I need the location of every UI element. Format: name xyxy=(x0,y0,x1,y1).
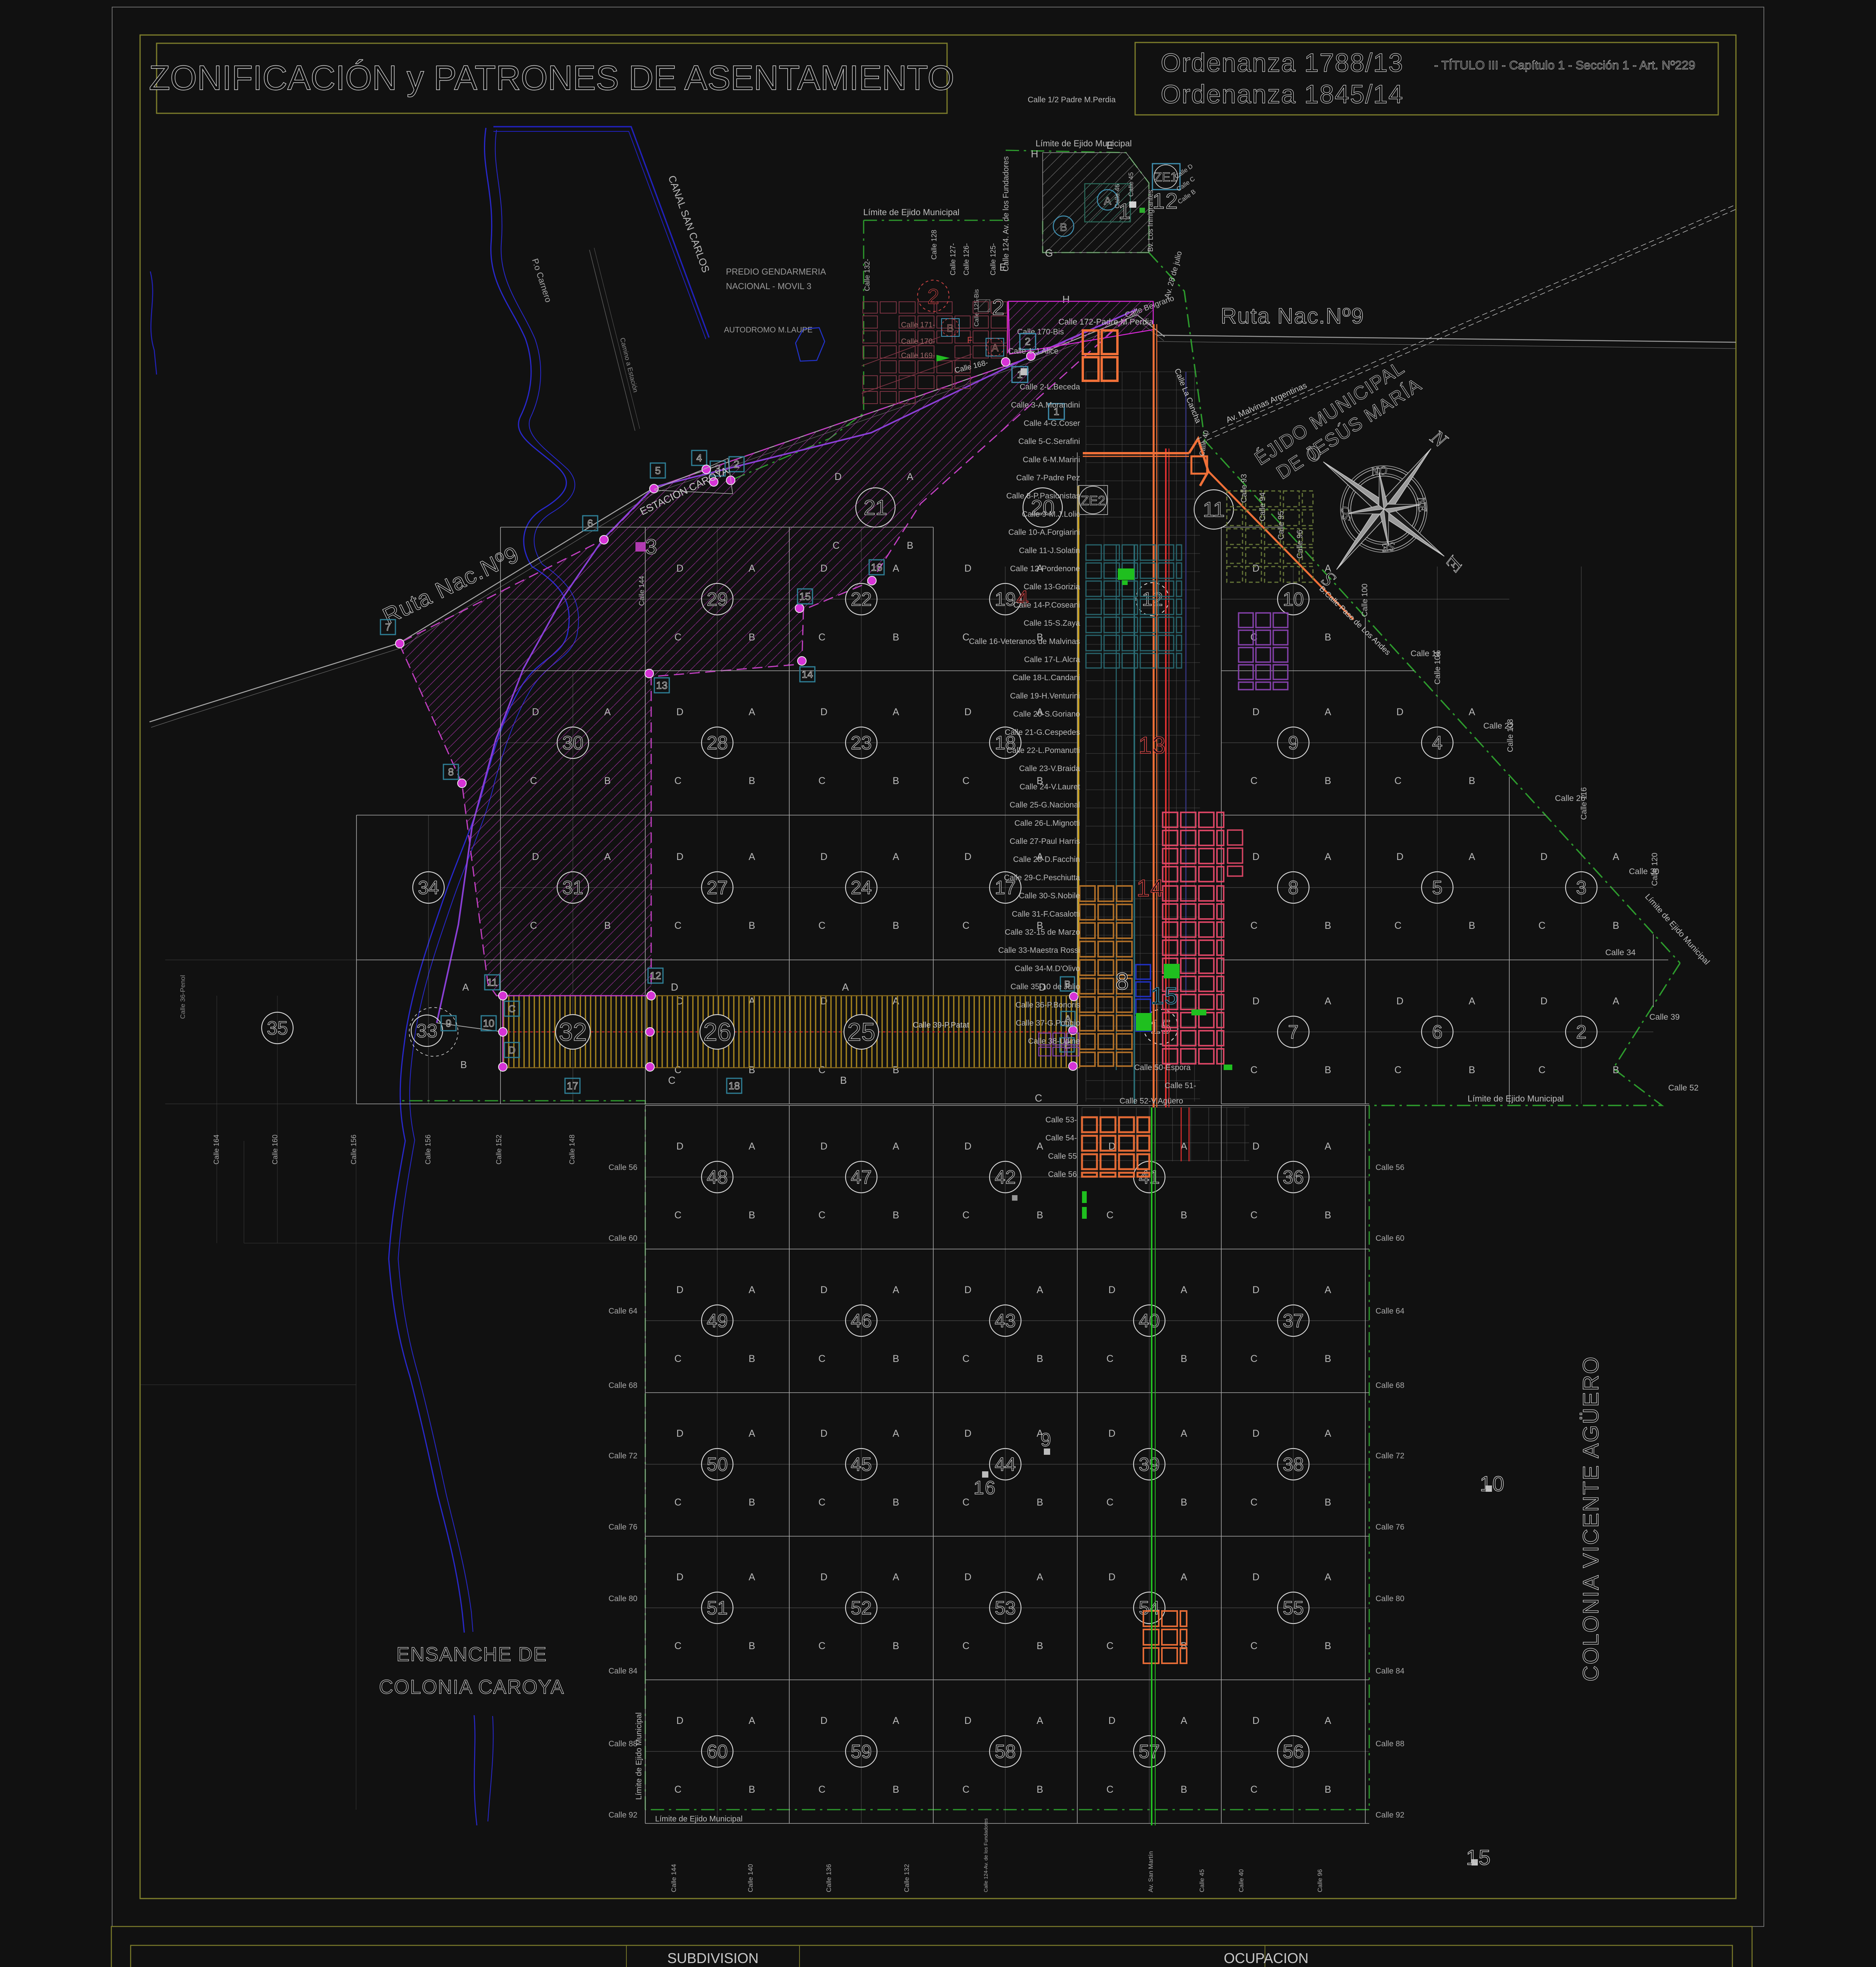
svg-text:C: C xyxy=(674,1784,681,1795)
svg-text:Calle 84: Calle 84 xyxy=(1376,1667,1404,1675)
svg-text:Calle 20-S.Goriano: Calle 20-S.Goriano xyxy=(1013,710,1080,719)
svg-text:Calle 127-: Calle 127- xyxy=(949,243,957,275)
svg-text:C: C xyxy=(1106,1640,1113,1651)
svg-text:Calle 7-Padre Pez: Calle 7-Padre Pez xyxy=(1016,474,1080,482)
svg-text:D: D xyxy=(676,1284,683,1295)
svg-text:A: A xyxy=(1325,1572,1331,1583)
svg-text:B: B xyxy=(893,1353,899,1364)
svg-text:AUTODROMO M.LAUPE: AUTODROMO M.LAUPE xyxy=(724,326,812,334)
svg-text:D: D xyxy=(964,563,971,574)
svg-text:60: 60 xyxy=(707,1741,728,1762)
svg-text:6: 6 xyxy=(587,517,593,529)
svg-text:D: D xyxy=(1252,851,1259,862)
svg-text:Calle 21-G.Cespedes: Calle 21-G.Cespedes xyxy=(1005,728,1080,737)
svg-text:5: 5 xyxy=(1432,877,1443,898)
svg-text:Calle 54-: Calle 54- xyxy=(1045,1134,1077,1142)
svg-text:D: D xyxy=(1108,1715,1115,1726)
svg-text:D: D xyxy=(1540,851,1547,862)
svg-text:Calle 31-F.Casalotti: Calle 31-F.Casalotti xyxy=(1012,910,1080,919)
svg-text:D: D xyxy=(835,471,842,482)
svg-text:ZONIFICACIÓN y PATRONES DE ASE: ZONIFICACIÓN y PATRONES DE ASENTAMIENTO xyxy=(149,58,954,97)
svg-text:27: 27 xyxy=(707,877,728,898)
svg-text:Calle 50-Espora: Calle 50-Espora xyxy=(1134,1063,1191,1072)
svg-text:47: 47 xyxy=(851,1167,872,1188)
svg-text:Calle 88: Calle 88 xyxy=(1376,1740,1404,1748)
svg-text:D: D xyxy=(1252,1428,1259,1439)
svg-text:4: 4 xyxy=(1432,733,1443,753)
svg-text:4: 4 xyxy=(696,452,702,464)
svg-text:B: B xyxy=(604,920,611,931)
svg-text:Calle 52-V.Agüero: Calle 52-V.Agüero xyxy=(1119,1097,1183,1105)
svg-text:D: D xyxy=(532,851,539,862)
svg-text:B: B xyxy=(893,920,899,931)
svg-text:C: C xyxy=(1250,1353,1257,1364)
svg-text:13: 13 xyxy=(1139,732,1167,758)
svg-text:B: B xyxy=(749,1210,755,1221)
svg-text:Calle 95: Calle 95 xyxy=(1277,511,1285,540)
svg-text:Calle 28-D.Facchin: Calle 28-D.Facchin xyxy=(1013,855,1080,864)
svg-text:57: 57 xyxy=(1139,1741,1160,1762)
svg-text:C: C xyxy=(962,1210,969,1221)
svg-text:Calle 33-Maestra Rossi: Calle 33-Maestra Rossi xyxy=(998,946,1080,955)
svg-text:A: A xyxy=(1325,1428,1331,1439)
svg-text:B: B xyxy=(907,540,914,551)
svg-text:55: 55 xyxy=(1283,1598,1304,1618)
svg-text:A: A xyxy=(893,1428,899,1439)
svg-text:- TÍTULO III - Capítulo 1 - Se: - TÍTULO III - Capítulo 1 - Sección 1 - … xyxy=(1434,58,1695,72)
svg-text:D: D xyxy=(676,1141,683,1152)
svg-text:Ordenanza 1845/14: Ordenanza 1845/14 xyxy=(1161,79,1403,109)
svg-text:C: C xyxy=(818,632,825,643)
svg-text:A: A xyxy=(893,1141,899,1152)
svg-text:50: 50 xyxy=(707,1454,728,1475)
svg-text:D: D xyxy=(1108,1572,1115,1583)
svg-text:Calle 32-15 de Marzo: Calle 32-15 de Marzo xyxy=(1005,928,1080,937)
svg-text:53: 53 xyxy=(995,1598,1016,1618)
svg-text:B: B xyxy=(1037,1640,1043,1651)
svg-text:2: 2 xyxy=(1576,1022,1587,1043)
svg-text:6: 6 xyxy=(1432,1022,1443,1043)
svg-text:C: C xyxy=(508,1004,515,1015)
svg-text:Calle 96: Calle 96 xyxy=(1296,530,1304,559)
svg-text:3: 3 xyxy=(1576,877,1587,898)
svg-text:2: 2 xyxy=(992,295,1005,319)
svg-text:Calle 9-M.J.Lolic: Calle 9-M.J.Lolic xyxy=(1022,510,1080,519)
svg-text:D: D xyxy=(1252,996,1259,1007)
svg-text:Calle 76: Calle 76 xyxy=(1376,1523,1404,1532)
svg-text:29: 29 xyxy=(707,589,728,610)
svg-text:Calle 56: Calle 56 xyxy=(609,1163,637,1172)
svg-text:C: C xyxy=(674,775,681,786)
svg-text:Calle 80: Calle 80 xyxy=(1376,1594,1404,1603)
svg-text:Calle 26-L.Mignotti: Calle 26-L.Mignotti xyxy=(1014,819,1080,828)
svg-text:Calle 128: Calle 128 xyxy=(930,230,938,260)
svg-text:Calle 80: Calle 80 xyxy=(609,1594,637,1603)
svg-text:Calle 34-M.D'Olivo: Calle 34-M.D'Olivo xyxy=(1015,964,1080,973)
svg-text:C: C xyxy=(1538,920,1545,931)
svg-text:B: B xyxy=(1060,221,1067,233)
svg-text:B: B xyxy=(1181,1784,1187,1795)
svg-text:Calle 148: Calle 148 xyxy=(568,1135,576,1164)
svg-text:Límite de Ejido Municipal: Límite de Ejido Municipal xyxy=(863,207,960,217)
svg-text:D: D xyxy=(1252,563,1259,574)
svg-text:D: D xyxy=(964,1284,971,1295)
svg-text:OCUPACION: OCUPACION xyxy=(1224,1950,1308,1966)
svg-text:A: A xyxy=(749,1572,755,1583)
svg-text:D: D xyxy=(820,1141,827,1152)
svg-text:34: 34 xyxy=(418,877,439,898)
svg-text:8: 8 xyxy=(1288,877,1299,898)
svg-text:Límite de Ejido Municipal: Límite de Ejido Municipal xyxy=(655,1815,742,1823)
svg-text:Calle 76: Calle 76 xyxy=(609,1523,637,1532)
svg-text:Límite de Ejido Municipal: Límite de Ejido Municipal xyxy=(635,1712,643,1800)
svg-text:B: B xyxy=(1037,1784,1043,1795)
svg-text:C: C xyxy=(674,920,681,931)
svg-text:A: A xyxy=(1181,1428,1187,1439)
svg-text:10: 10 xyxy=(1480,1472,1505,1496)
svg-text:37: 37 xyxy=(1283,1310,1304,1331)
svg-text:NACIONAL - MOVIL 3: NACIONAL - MOVIL 3 xyxy=(726,281,811,291)
svg-text:A: A xyxy=(1325,1141,1331,1152)
svg-text:COLONIA CAROYA: COLONIA CAROYA xyxy=(379,1676,565,1698)
svg-text:Calle 120: Calle 120 xyxy=(1651,852,1659,886)
svg-text:NE: NE xyxy=(1414,496,1429,513)
svg-text:B: B xyxy=(1325,775,1331,786)
svg-text:54: 54 xyxy=(1139,1598,1160,1618)
svg-text:Calle 13-Gorizia: Calle 13-Gorizia xyxy=(1024,583,1080,591)
svg-text:Calle 160: Calle 160 xyxy=(271,1135,279,1164)
svg-text:58: 58 xyxy=(995,1741,1016,1762)
svg-text:C: C xyxy=(674,632,681,643)
svg-text:43: 43 xyxy=(995,1310,1016,1331)
svg-text:Calle 36-P.Bonoris: Calle 36-P.Bonoris xyxy=(1016,1001,1080,1009)
svg-text:Calle 25-G.Nacional: Calle 25-G.Nacional xyxy=(1010,801,1080,810)
svg-text:D: D xyxy=(820,851,827,862)
svg-text:36: 36 xyxy=(1283,1167,1304,1188)
svg-text:B: B xyxy=(749,1784,755,1795)
svg-text:39: 39 xyxy=(1139,1454,1160,1475)
svg-text:Calle 60: Calle 60 xyxy=(609,1234,637,1243)
svg-text:19: 19 xyxy=(995,589,1016,610)
svg-text:Calle 45: Calle 45 xyxy=(1127,172,1135,197)
svg-text:A: A xyxy=(749,707,755,718)
svg-text:B: B xyxy=(1469,775,1475,786)
svg-text:C: C xyxy=(1106,1210,1113,1221)
svg-text:ENSANCHE DE: ENSANCHE DE xyxy=(396,1643,547,1665)
svg-text:Calle 144: Calle 144 xyxy=(670,1864,678,1892)
svg-text:46: 46 xyxy=(851,1310,872,1331)
svg-text:14: 14 xyxy=(802,668,813,680)
svg-text:Av. San Martín: Av. San Martín xyxy=(1148,1851,1154,1892)
svg-text:B: B xyxy=(1181,1210,1187,1221)
svg-text:C: C xyxy=(818,920,825,931)
svg-text:B: B xyxy=(893,1497,899,1508)
svg-text:D: D xyxy=(1252,1284,1259,1295)
svg-text:Calle 1/2 Padre M.Perdia: Calle 1/2 Padre M.Perdia xyxy=(1028,96,1116,104)
svg-text:26: 26 xyxy=(703,1018,731,1046)
svg-text:D: D xyxy=(1252,707,1259,718)
svg-text:Calle 3-A.Morandini: Calle 3-A.Morandini xyxy=(1011,401,1080,410)
svg-text:24: 24 xyxy=(851,877,872,898)
svg-text:B: B xyxy=(460,1059,467,1070)
svg-text:13: 13 xyxy=(656,679,668,691)
svg-text:Calle 30-S.Nobile: Calle 30-S.Nobile xyxy=(1019,892,1080,900)
svg-text:B: B xyxy=(1325,1353,1331,1364)
svg-text:Calle 104: Calle 104 xyxy=(1433,651,1442,685)
svg-text:A: A xyxy=(1037,1284,1043,1295)
svg-text:C: C xyxy=(818,1497,825,1508)
svg-text:D: D xyxy=(1396,996,1403,1007)
svg-text:A: A xyxy=(1613,996,1619,1007)
svg-text:B: B xyxy=(1037,1353,1043,1364)
svg-text:2: 2 xyxy=(734,458,739,470)
svg-text:C: C xyxy=(818,1640,825,1651)
svg-text:D: D xyxy=(676,1572,683,1583)
svg-text:C: C xyxy=(1394,775,1401,786)
svg-text:33: 33 xyxy=(416,1020,437,1041)
svg-text:D: D xyxy=(1396,707,1403,718)
svg-text:A: A xyxy=(462,982,469,993)
svg-text:B: B xyxy=(1469,920,1475,931)
svg-text:A: A xyxy=(1104,195,1112,207)
svg-text:A: A xyxy=(992,342,999,354)
svg-text:D: D xyxy=(1540,996,1547,1007)
svg-text:18: 18 xyxy=(729,1080,740,1092)
svg-text:D: D xyxy=(820,563,827,574)
svg-text:Calle 40: Calle 40 xyxy=(1238,1869,1245,1892)
svg-text:Calle 171-: Calle 171- xyxy=(901,321,935,329)
svg-text:Calle 6-M.Marini: Calle 6-M.Marini xyxy=(1023,456,1080,464)
svg-text:B: B xyxy=(1325,1065,1331,1076)
svg-text:C: C xyxy=(962,920,969,931)
svg-text:Calle 124. Av. de los Fundador: Calle 124. Av. de los Fundadores xyxy=(1002,156,1010,271)
svg-text:51: 51 xyxy=(707,1598,728,1618)
svg-text:B: B xyxy=(893,632,899,643)
svg-text:A: A xyxy=(1181,1715,1187,1726)
svg-text:A: A xyxy=(1325,1715,1331,1726)
svg-text:Calle 64: Calle 64 xyxy=(1376,1307,1404,1316)
svg-text:35: 35 xyxy=(267,1018,288,1039)
svg-text:B: B xyxy=(893,775,899,786)
svg-text:B: B xyxy=(1325,920,1331,931)
svg-text:Calle 126-: Calle 126- xyxy=(962,243,970,275)
svg-text:B: B xyxy=(840,1074,847,1086)
svg-text:Calle 11-J.Solatin: Calle 11-J.Solatin xyxy=(1019,546,1080,555)
svg-text:Calle 72: Calle 72 xyxy=(609,1452,637,1460)
svg-text:SO: SO xyxy=(1339,506,1353,522)
svg-text:D: D xyxy=(820,1572,827,1583)
svg-text:B: B xyxy=(1325,1210,1331,1221)
svg-text:Calle 52: Calle 52 xyxy=(1668,1083,1699,1092)
svg-text:B: B xyxy=(1325,632,1331,643)
svg-text:A: A xyxy=(749,1715,755,1726)
svg-text:9: 9 xyxy=(1288,733,1299,753)
svg-text:C: C xyxy=(1106,1353,1113,1364)
svg-text:A: A xyxy=(893,563,899,574)
svg-text:38: 38 xyxy=(1283,1454,1304,1475)
svg-text:PREDIO GENDARMERIA: PREDIO GENDARMERIA xyxy=(726,267,826,277)
svg-text:Ordenanza 1788/13: Ordenanza 1788/13 xyxy=(1161,48,1403,77)
svg-text:B: B xyxy=(749,775,755,786)
svg-text:15: 15 xyxy=(800,590,811,602)
svg-text:5: 5 xyxy=(655,465,661,476)
svg-text:ZE1: ZE1 xyxy=(1154,170,1178,184)
svg-text:2: 2 xyxy=(927,285,939,308)
svg-text:Calle 108: Calle 108 xyxy=(1506,719,1515,752)
svg-text:Bv. Los Inmigrantes: Bv. Los Inmigrantes xyxy=(1147,190,1154,252)
svg-text:C: C xyxy=(962,1353,969,1364)
svg-text:D: D xyxy=(676,851,683,862)
svg-text:D: D xyxy=(820,1284,827,1295)
svg-text:D: D xyxy=(964,707,971,718)
svg-text:A: A xyxy=(749,1284,755,1295)
svg-text:8: 8 xyxy=(1115,968,1129,995)
svg-text:D: D xyxy=(964,851,971,862)
svg-text:Calle 72: Calle 72 xyxy=(1376,1452,1404,1460)
svg-text:D: D xyxy=(1252,1141,1259,1152)
svg-text:C: C xyxy=(1106,1497,1113,1508)
svg-text:B: B xyxy=(749,632,755,643)
svg-text:52: 52 xyxy=(851,1598,872,1618)
svg-text:B: B xyxy=(1181,1497,1187,1508)
svg-text:Calle 29-C.Peschiutta: Calle 29-C.Peschiutta xyxy=(1004,873,1080,882)
svg-text:C: C xyxy=(833,540,840,551)
svg-text:10: 10 xyxy=(1283,589,1304,610)
svg-text:Calle 53-: Calle 53- xyxy=(1045,1116,1077,1124)
svg-text:Calle 24-V.Lauret: Calle 24-V.Lauret xyxy=(1019,782,1080,791)
svg-text:D: D xyxy=(964,1428,971,1439)
svg-text:Calle 55: Calle 55 xyxy=(1048,1152,1077,1161)
svg-text:A: A xyxy=(1469,851,1475,862)
svg-text:Calle 100: Calle 100 xyxy=(1361,583,1369,617)
svg-text:Calle 68: Calle 68 xyxy=(1376,1381,1404,1390)
svg-text:A: A xyxy=(907,471,914,482)
svg-text:A: A xyxy=(1181,1284,1187,1295)
svg-text:9: 9 xyxy=(1041,1430,1052,1450)
svg-text:8: 8 xyxy=(448,766,454,778)
svg-text:A: A xyxy=(749,1428,755,1439)
svg-text:Calle 125-: Calle 125- xyxy=(989,243,997,275)
svg-text:Calle 15-S.Zaya: Calle 15-S.Zaya xyxy=(1024,619,1080,628)
svg-text:D: D xyxy=(1108,1284,1115,1295)
svg-text:25: 25 xyxy=(847,1018,875,1046)
svg-text:C: C xyxy=(1106,1784,1113,1795)
svg-text:A: A xyxy=(1325,707,1331,718)
svg-text:B: B xyxy=(749,1640,755,1651)
svg-text:C: C xyxy=(1035,1092,1042,1104)
svg-text:C: C xyxy=(674,1640,681,1651)
svg-text:Calle 164: Calle 164 xyxy=(212,1135,220,1164)
svg-text:C: C xyxy=(1250,775,1257,786)
svg-text:B: B xyxy=(947,322,953,334)
svg-text:Calle 124-Av. de los Fundadore: Calle 124-Av. de los Fundadores xyxy=(983,1818,989,1892)
svg-text:C: C xyxy=(818,775,825,786)
svg-text:C: C xyxy=(962,632,969,643)
svg-text:D: D xyxy=(964,1141,971,1152)
svg-text:ZE2: ZE2 xyxy=(1081,493,1105,508)
svg-text:A: A xyxy=(1325,1284,1331,1295)
svg-text:28: 28 xyxy=(707,733,728,753)
svg-text:B: B xyxy=(604,775,611,786)
svg-text:Límite de Ejido Municipal: Límite de Ejido Municipal xyxy=(1468,1094,1564,1103)
svg-text:Calle 39: Calle 39 xyxy=(1649,1013,1680,1022)
svg-text:Calle 19-H.Venturini: Calle 19-H.Venturini xyxy=(1010,692,1080,700)
svg-text:B: B xyxy=(1037,1497,1043,1508)
svg-text:Calle 84: Calle 84 xyxy=(609,1667,637,1675)
svg-text:44: 44 xyxy=(995,1454,1016,1475)
svg-text:Calle 116: Calle 116 xyxy=(1580,787,1588,820)
svg-text:C: C xyxy=(674,1353,681,1364)
svg-text:Calle 39-P.Patat: Calle 39-P.Patat xyxy=(913,1021,969,1030)
svg-text:C: C xyxy=(1250,920,1257,931)
svg-text:23: 23 xyxy=(851,733,872,753)
svg-text:48: 48 xyxy=(707,1167,728,1188)
svg-text:B: B xyxy=(1325,1497,1331,1508)
svg-text:30: 30 xyxy=(562,733,583,753)
svg-text:11: 11 xyxy=(487,976,498,988)
svg-text:Calle 56: Calle 56 xyxy=(1048,1170,1077,1179)
svg-text:Calle 46: Calle 46 xyxy=(1113,184,1121,209)
svg-text:7: 7 xyxy=(1288,1022,1299,1043)
svg-text:D: D xyxy=(1108,1428,1115,1439)
svg-text:A: A xyxy=(604,851,611,862)
svg-text:Calle 136: Calle 136 xyxy=(825,1864,833,1892)
svg-text:D: D xyxy=(820,707,827,718)
svg-text:Calle 38-Udine: Calle 38-Udine xyxy=(1028,1037,1080,1046)
svg-text:C: C xyxy=(1250,1640,1257,1651)
svg-text:Calle 92: Calle 92 xyxy=(1376,1811,1404,1819)
svg-text:21: 21 xyxy=(864,496,887,519)
svg-text:Calle 156: Calle 156 xyxy=(350,1135,358,1164)
svg-text:A: A xyxy=(893,707,899,718)
svg-text:SE: SE xyxy=(1381,540,1396,554)
svg-text:D: D xyxy=(676,707,683,718)
svg-text:42: 42 xyxy=(995,1167,1016,1188)
svg-text:Calle 96: Calle 96 xyxy=(1317,1869,1324,1892)
svg-text:A: A xyxy=(1469,996,1475,1007)
svg-text:Calle 45: Calle 45 xyxy=(1199,1869,1206,1892)
svg-text:A: A xyxy=(1037,1715,1043,1726)
svg-text:Calle 88: Calle 88 xyxy=(609,1740,637,1748)
svg-text:C: C xyxy=(674,1210,681,1221)
svg-text:Calle 92: Calle 92 xyxy=(609,1811,637,1819)
svg-text:H: H xyxy=(1031,148,1038,160)
svg-text:B: B xyxy=(893,1640,899,1651)
svg-text:C: C xyxy=(1394,920,1401,931)
svg-text:A: A xyxy=(1325,851,1331,862)
svg-text:Límite de Ejido Municipal: Límite de Ejido Municipal xyxy=(1036,138,1132,148)
svg-text:A: A xyxy=(604,707,611,718)
svg-text:Calle 68: Calle 68 xyxy=(609,1381,637,1390)
svg-text:Calle 170-: Calle 170- xyxy=(901,338,935,346)
svg-text:22: 22 xyxy=(851,589,872,610)
svg-text:15: 15 xyxy=(1466,1846,1491,1869)
svg-text:Calle 14-P.Coseani: Calle 14-P.Coseani xyxy=(1013,601,1080,609)
svg-text:C: C xyxy=(674,1497,681,1508)
svg-text:C: C xyxy=(962,775,969,786)
svg-text:NO: NO xyxy=(1370,464,1388,479)
svg-text:45: 45 xyxy=(851,1454,872,1475)
svg-text:Calle 94: Calle 94 xyxy=(1258,493,1267,521)
svg-text:Ruta Nac.Nº9: Ruta Nac.Nº9 xyxy=(1221,303,1364,328)
svg-text:7: 7 xyxy=(385,621,391,633)
svg-text:C: C xyxy=(818,1784,825,1795)
svg-text:E: E xyxy=(1106,139,1113,151)
svg-text:D: D xyxy=(820,1715,827,1726)
svg-text:Calle 64: Calle 64 xyxy=(609,1307,637,1316)
svg-text:G: G xyxy=(1045,247,1053,259)
svg-text:C: C xyxy=(1250,1065,1257,1076)
